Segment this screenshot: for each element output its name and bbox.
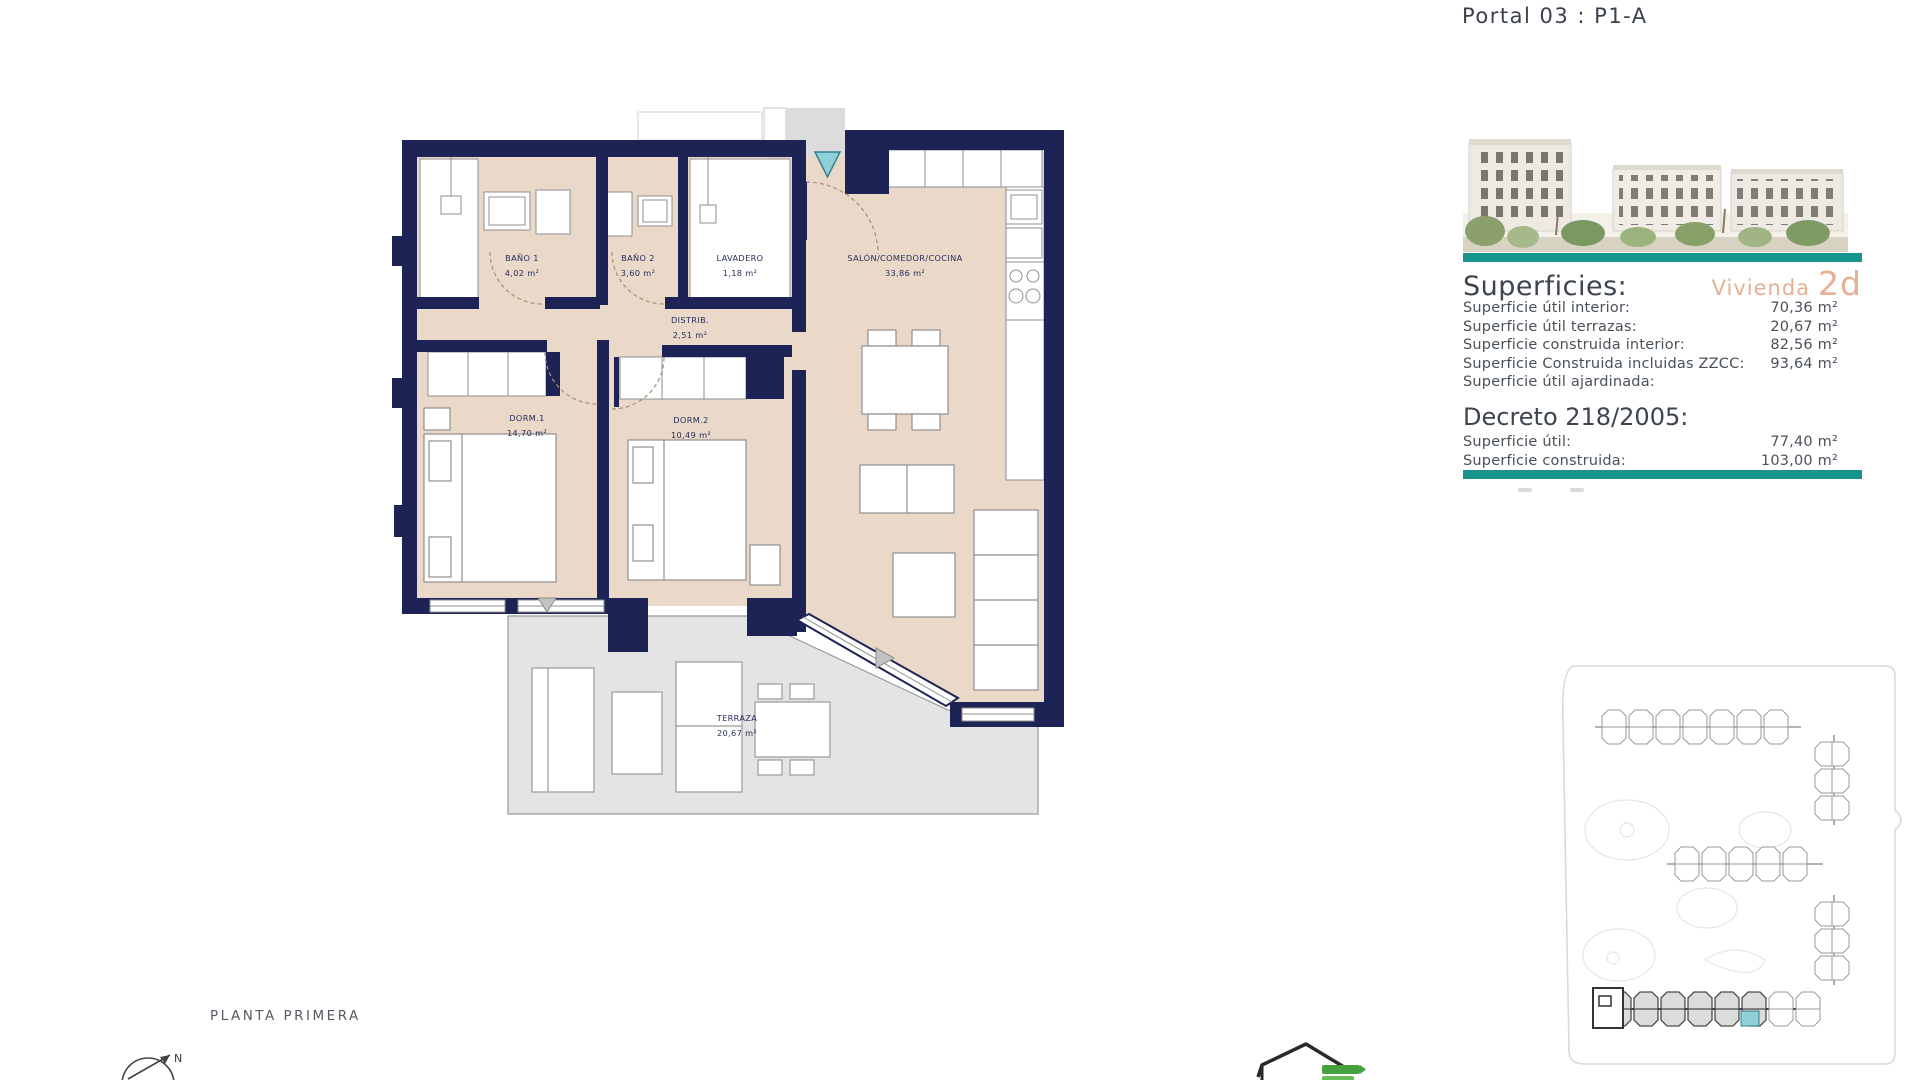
surface-row: Superficie construida: 103,00 m² xyxy=(1463,453,1838,472)
site-plan-key-map xyxy=(1555,660,1920,1080)
room-name: SALÓN/COMEDOR/COCINA xyxy=(847,252,962,263)
superficies-heading: Superficies: xyxy=(1463,271,1627,302)
surface-value: 103,00 m² xyxy=(1761,453,1838,472)
room-area: 20,67 m² xyxy=(717,728,757,738)
surface-row: Superficie útil interior: 70,36 m² xyxy=(1463,300,1838,319)
divider-bar-bottom xyxy=(1463,470,1862,479)
room-area: 3,60 m² xyxy=(621,268,656,278)
building-row-middle xyxy=(1667,847,1823,881)
superficies-header: Superficies: Vivienda2d xyxy=(1463,264,1862,303)
room-name: BAÑO 2 xyxy=(621,253,655,263)
surface-label: Superficie útil: xyxy=(1463,434,1571,453)
decreto-rows: Superficie útil: 77,40 m² Superficie con… xyxy=(1463,434,1838,471)
vivienda-value: 2d xyxy=(1818,264,1862,303)
floor-level-label: PLANTA PRIMERA xyxy=(210,1008,361,1024)
room-name: DORM.2 xyxy=(673,415,708,425)
surface-label: Superficie útil terrazas: xyxy=(1463,319,1637,338)
building-row-top xyxy=(1595,710,1801,744)
truncated-text-marks xyxy=(1518,488,1648,492)
energy-house-icon xyxy=(1248,1035,1378,1080)
surface-value: 93,64 m² xyxy=(1770,356,1838,375)
room-name: DORM.1 xyxy=(509,413,544,423)
surface-label: Superficie construida interior: xyxy=(1463,337,1685,356)
divider-bar-top xyxy=(1463,253,1862,262)
room-name: LAVADERO xyxy=(717,253,764,263)
room-area: 4,02 m² xyxy=(505,268,540,278)
surface-row: Superficie útil ajardinada: xyxy=(1463,374,1838,393)
vivienda-tag: Vivienda2d xyxy=(1712,264,1862,303)
highlighted-unit xyxy=(1741,1011,1759,1026)
building-block-right-a xyxy=(1815,735,1849,825)
room-name: TERRAZA xyxy=(716,713,758,723)
site-landscaping xyxy=(1583,800,1791,981)
surface-value: 77,40 m² xyxy=(1770,434,1838,453)
surface-row: Superficie útil terrazas: 20,67 m² xyxy=(1463,319,1838,338)
surface-label: Superficie construida: xyxy=(1463,453,1626,472)
surface-value: 82,56 m² xyxy=(1770,337,1838,356)
room-area: 2,51 m² xyxy=(673,330,708,340)
surface-label: Superficie Construida incluidas ZZCC: xyxy=(1463,356,1745,375)
superficies-rows: Superficie útil interior: 70,36 m² Super… xyxy=(1463,300,1838,393)
building-block-right-b xyxy=(1815,895,1849,985)
room-area: 33,86 m² xyxy=(885,268,925,278)
render-scene xyxy=(1463,113,1848,252)
room-area: 14,70 m² xyxy=(507,428,547,438)
decreto-heading: Decreto 218/2005: xyxy=(1463,403,1688,431)
surface-row: Superficie útil: 77,40 m² xyxy=(1463,434,1838,453)
vivienda-label: Vivienda xyxy=(1712,276,1810,300)
surface-row: Superficie Construida incluidas ZZCC: 93… xyxy=(1463,356,1838,375)
surface-label: Superficie útil ajardinada: xyxy=(1463,374,1655,393)
floor-plan: BAÑO 1 4,02 m² BAÑO 2 3,60 m² LAVADERO 1… xyxy=(380,95,1100,830)
building-row-bottom-highlighted xyxy=(1593,988,1820,1028)
surface-value: 20,67 m² xyxy=(1770,319,1838,338)
surface-value: 70,36 m² xyxy=(1770,300,1838,319)
compass-north-label: N xyxy=(174,1052,182,1065)
room-area: 1,18 m² xyxy=(723,268,758,278)
sheet-title: Portal 03 : P1-A xyxy=(1462,4,1648,28)
room-name: BAÑO 1 xyxy=(505,253,539,263)
room-name: DISTRIB. xyxy=(671,315,709,325)
surface-label: Superficie útil interior: xyxy=(1463,300,1630,319)
building-render-image xyxy=(1463,113,1848,252)
room-area: 10,49 m² xyxy=(671,430,711,440)
north-compass-icon: N xyxy=(118,1046,238,1080)
surface-row: Superficie construida interior: 82,56 m² xyxy=(1463,337,1838,356)
